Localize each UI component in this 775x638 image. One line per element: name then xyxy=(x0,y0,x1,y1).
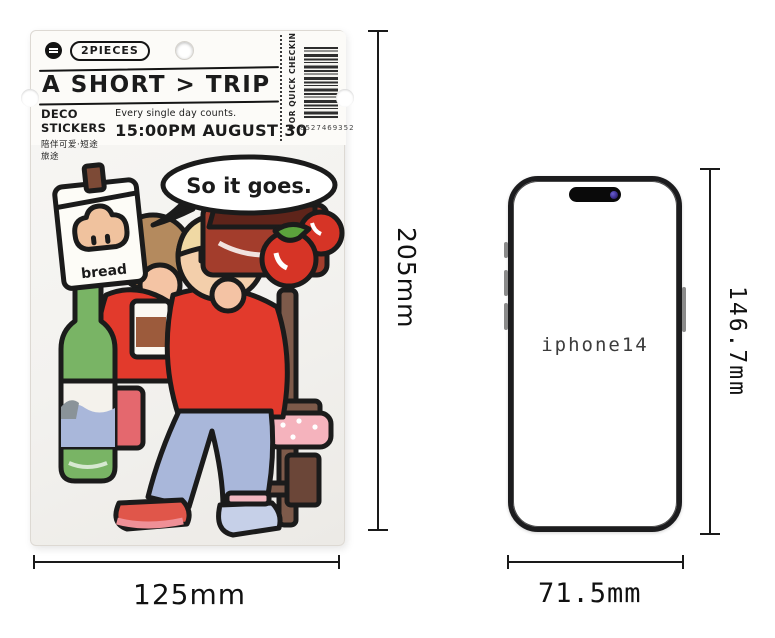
product-size-diagram: 2PIECES A SHORT > TRIP DECO STICKERS 陪伴可… xyxy=(0,0,775,638)
phone-height-label: 146.7mm xyxy=(724,286,750,397)
package-header-card: 2PIECES A SHORT > TRIP DECO STICKERS 陪伴可… xyxy=(31,31,346,145)
package-height-label: 205mm xyxy=(392,227,421,328)
package-date-block: Every single day counts. 15:00PM AUGUST … xyxy=(115,107,307,141)
ticket-perforation xyxy=(280,35,282,141)
speech-bubble-text: So it goes. xyxy=(186,174,312,198)
package-category-block: DECO STICKERS 陪伴可爱·短途旅途 xyxy=(41,107,106,141)
sticker-art: bread So it goes. xyxy=(31,145,346,547)
brand-logo-icon xyxy=(45,42,62,59)
barcode-icon xyxy=(304,47,338,119)
phone-height-dimension-line xyxy=(709,168,711,535)
drink-cup xyxy=(132,301,170,357)
mute-switch xyxy=(504,242,508,258)
sticker-package: 2PIECES A SHORT > TRIP DECO STICKERS 陪伴可… xyxy=(30,30,345,546)
header-rule-bottom xyxy=(39,101,279,106)
hang-hole-icon xyxy=(175,41,194,60)
package-height-dimension-line xyxy=(377,30,379,531)
package-meta-row: DECO STICKERS 陪伴可爱·短途旅途 Every single day… xyxy=(41,107,279,141)
ticket-side-text: FOR QUICK CHECKIN xyxy=(288,47,297,129)
bread-bag: bread xyxy=(52,161,146,289)
package-category: DECO STICKERS xyxy=(41,107,106,135)
volume-up-button xyxy=(504,270,508,296)
package-title: A SHORT > TRIP xyxy=(42,72,282,98)
dynamic-island xyxy=(569,187,621,202)
package-event-time: 15:00PM AUGUST 30 xyxy=(115,121,307,140)
package-width-dimension-line xyxy=(33,561,340,563)
package-tagline: Every single day counts. xyxy=(115,108,307,119)
pieces-badge: 2PIECES xyxy=(70,41,150,61)
front-camera-icon xyxy=(610,191,618,199)
package-width-label: 125mm xyxy=(133,578,246,611)
phone-width-dimension-line xyxy=(507,561,684,563)
phone-width-label: 71.5mm xyxy=(538,578,642,609)
iphone-outline: iphone14 xyxy=(508,176,682,532)
volume-down-button xyxy=(504,303,508,330)
barcode-number: 8527469352 xyxy=(300,124,355,132)
power-button xyxy=(682,287,686,332)
phone-model-label: iphone14 xyxy=(513,334,677,356)
ticket-notch-left xyxy=(21,89,39,107)
sticker-illustration: bread So it goes. xyxy=(31,145,346,547)
ticket-notch-right xyxy=(336,89,354,107)
